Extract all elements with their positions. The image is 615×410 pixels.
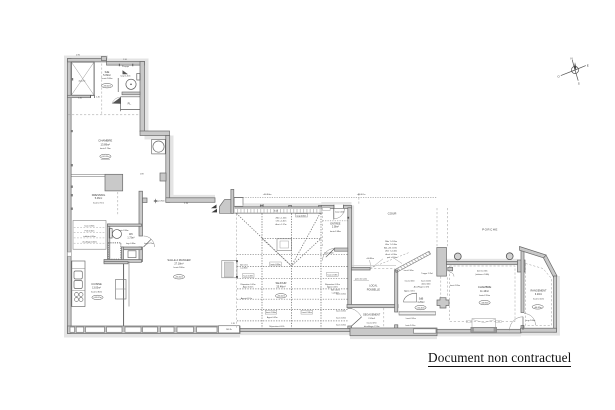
svg-text:haut≈2.08m: haut≈2.08m bbox=[302, 311, 312, 314]
svg-text:haut≈2.05m: haut≈2.05m bbox=[406, 317, 416, 320]
svg-text:douche: douche bbox=[79, 80, 87, 82]
svg-text:Arret +1.37m: Arret +1.37m bbox=[276, 223, 287, 226]
svg-text:L8m +2.40m: L8m +2.40m bbox=[276, 221, 287, 223]
svg-text:L=0.80m: L=0.80m bbox=[240, 268, 248, 270]
svg-text:haut≈2.08m: haut≈2.08m bbox=[330, 230, 341, 233]
svg-text:haut≈2.05m: haut≈2.05m bbox=[336, 316, 346, 319]
svg-text:Am 0.5m: Am 0.5m bbox=[240, 263, 248, 266]
svg-text:SEJOUR: SEJOUR bbox=[276, 281, 287, 285]
svg-text:PORCHE: PORCHE bbox=[482, 227, 498, 231]
svg-text:Réparation≈0.07b: Réparation≈0.07b bbox=[269, 325, 284, 328]
svg-text:haut≈2.80m: haut≈2.80m bbox=[91, 290, 102, 293]
svg-text:+66.02m: +66.02m bbox=[175, 277, 183, 279]
svg-text:13.89m²: 13.89m² bbox=[101, 142, 111, 146]
svg-text:Prof≈0.60m: Prof≈0.60m bbox=[85, 230, 95, 233]
svg-text:1.45: 1.45 bbox=[78, 98, 82, 100]
svg-text:4.25m²: 4.25m² bbox=[417, 301, 424, 304]
svg-text:larg≈1.06m: larg≈1.06m bbox=[324, 251, 334, 254]
svg-text:PL.: PL. bbox=[128, 103, 132, 106]
svg-text:RANGEMENT: RANGEMENT bbox=[531, 289, 547, 292]
svg-text:CHAMBRE: CHAMBRE bbox=[478, 285, 492, 289]
svg-text:265.2b: 265.2b bbox=[226, 329, 232, 331]
svg-text:haut≈2.05m: haut≈2.05m bbox=[405, 279, 415, 282]
svg-text:+66.82m: +66.82m bbox=[534, 307, 542, 309]
svg-text:26bn 7+2.05m: 26bn 7+2.05m bbox=[385, 241, 398, 243]
svg-text:haut≈2.80m: haut≈2.80m bbox=[119, 229, 129, 232]
svg-text:larg≈1.40m: larg≈1.40m bbox=[121, 76, 131, 78]
svg-text:haut≈2.08m: haut≈2.08m bbox=[328, 273, 338, 276]
svg-text:larg≈0.80m: larg≈0.80m bbox=[126, 242, 136, 245]
svg-text:Réparation 0.01m: Réparation 0.01m bbox=[240, 283, 255, 286]
svg-text:L/6m 7+2.40m: L/6m 7+2.40m bbox=[385, 244, 398, 246]
svg-text:S: S bbox=[578, 81, 580, 85]
svg-text:N: N bbox=[571, 56, 573, 60]
svg-text:1.50: 1.50 bbox=[123, 59, 127, 61]
svg-text:AsceFlagen 2.07b: AsceFlagen 2.07b bbox=[414, 286, 429, 289]
svg-text:L/6m 7+2.40m: L/6m 7+2.40m bbox=[385, 251, 398, 253]
svg-text:haut≈2.05m: haut≈2.05m bbox=[404, 269, 414, 272]
svg-text:haut≈2.05m: haut≈2.05m bbox=[405, 324, 415, 327]
svg-text:5.09m²: 5.09m² bbox=[103, 74, 111, 77]
svg-text:LOCAL: LOCAL bbox=[369, 284, 378, 287]
svg-text:larg≈2.08m: larg≈2.08m bbox=[526, 319, 536, 322]
svg-text:6.20m²: 6.20m² bbox=[535, 293, 542, 296]
svg-text:1.35: 1.35 bbox=[231, 323, 235, 325]
svg-text:+66.67m: +66.67m bbox=[357, 194, 366, 196]
svg-text:dalt≈2.40m: dalt≈2.40m bbox=[421, 283, 431, 286]
svg-text:+68.02m: +68.02m bbox=[103, 86, 111, 88]
svg-text:haut≈2.80m: haut≈2.80m bbox=[174, 266, 185, 269]
svg-text:CHAMBRE: CHAMBRE bbox=[98, 138, 112, 142]
svg-text:haut≈2.08m: haut≈2.08m bbox=[243, 275, 253, 278]
svg-text:+66.84m: +66.84m bbox=[263, 194, 272, 196]
svg-text:haut≈2.08m: haut≈2.08m bbox=[102, 77, 113, 80]
svg-text:décaiffrage≈2.54m: décaiffrage≈2.54m bbox=[364, 325, 380, 328]
svg-text:Am 1.42m: Am 1.42m bbox=[331, 289, 340, 292]
svg-text:+66.46m: +66.46m bbox=[416, 308, 424, 310]
svg-text:ENTREE: ENTREE bbox=[330, 222, 340, 225]
svg-text:(intérieur≈2.08h): (intérieur≈2.08h) bbox=[475, 273, 489, 276]
svg-text:haut≈2.05m: haut≈2.05m bbox=[336, 292, 346, 295]
svg-text:tablette≈0.40m: tablette≈0.40m bbox=[83, 235, 96, 238]
svg-text:haut≈2.20m: haut≈2.20m bbox=[533, 298, 544, 301]
svg-text:haut≈0.80m: haut≈0.80m bbox=[85, 224, 95, 227]
svg-text:SdB: SdB bbox=[419, 298, 424, 301]
svg-text:DEGAGEMENT: DEGAGEMENT bbox=[363, 314, 381, 317]
svg-text:5.46m²: 5.46m² bbox=[95, 197, 103, 200]
svg-text:DRESSING: DRESSING bbox=[92, 193, 106, 197]
svg-text:Appui≈0.17m: Appui≈0.17m bbox=[241, 297, 253, 300]
svg-text:+66.02m: +66.02m bbox=[277, 296, 285, 298]
svg-text:haut≈2.47m: haut≈2.47m bbox=[367, 321, 377, 324]
svg-text:13.05m²: 13.05m² bbox=[92, 287, 101, 290]
svg-text:Trappe 2.7bd: Trappe 2.7bd bbox=[421, 272, 432, 275]
svg-text:Appui 0.00m: Appui 0.00m bbox=[327, 286, 338, 289]
svg-text:E: E bbox=[587, 63, 589, 67]
svg-text:haut≈2.05m: haut≈2.05m bbox=[450, 284, 460, 287]
svg-text:2.45m²: 2.45m² bbox=[368, 317, 375, 320]
svg-text:haut≈0.80m: haut≈0.80m bbox=[271, 263, 281, 266]
svg-text:3.08: 3.08 bbox=[260, 205, 264, 207]
svg-text:1.98: 1.98 bbox=[140, 173, 144, 175]
svg-text:haut≈2.08m: haut≈2.08m bbox=[266, 311, 276, 314]
svg-text:haut≈2.71m: haut≈2.71m bbox=[93, 201, 104, 204]
svg-text:26bn +1.40m: 26bn +1.40m bbox=[275, 217, 287, 219]
svg-text:CUISINE: CUISINE bbox=[91, 282, 102, 286]
svg-text:larg≈0.80m: larg≈0.80m bbox=[297, 214, 307, 217]
svg-text:COUR: COUR bbox=[388, 211, 398, 215]
svg-text:SALLE A MANGER: SALLE A MANGER bbox=[167, 258, 190, 262]
svg-text:2.40: 2.40 bbox=[96, 96, 100, 98]
svg-text:dont 12.26m: dont 12.26m bbox=[477, 270, 488, 273]
svg-text:11.16m²: 11.16m² bbox=[480, 290, 489, 293]
svg-text:Appui 2.05m: Appui 2.05m bbox=[404, 289, 415, 292]
svg-text:larg≈0.90m: larg≈0.90m bbox=[155, 200, 165, 203]
svg-text:Appui 0.02m: Appui 0.02m bbox=[267, 316, 278, 319]
svg-text:2.38m²: 2.38m² bbox=[332, 226, 339, 229]
svg-text:+66.02m: +66.02m bbox=[101, 156, 109, 158]
svg-text:larg≈0.73m: larg≈0.73m bbox=[144, 242, 154, 245]
svg-text:larg≈1.40m: larg≈1.40m bbox=[335, 210, 345, 213]
svg-text:27.18m²: 27.18m² bbox=[174, 262, 183, 265]
svg-text:haut≈2.70m: haut≈2.70m bbox=[100, 147, 111, 150]
svg-text:haut≈2.05m: haut≈2.05m bbox=[336, 309, 346, 312]
svg-text:3.08: 3.08 bbox=[274, 211, 278, 213]
svg-text:+66.86m: +66.86m bbox=[366, 258, 374, 260]
svg-text:0.96: 0.96 bbox=[76, 54, 80, 56]
svg-text:prof +0.60m: prof +0.60m bbox=[387, 256, 398, 259]
svg-text:P.trappe: P.trappe bbox=[122, 65, 129, 68]
svg-text:Appui 0.00m: Appui 0.00m bbox=[243, 286, 254, 289]
svg-text:haut≈2.05m: haut≈2.05m bbox=[336, 323, 346, 326]
svg-text:porte de sortie: porte de sortie bbox=[355, 277, 367, 280]
svg-text:haut≈2.40m: haut≈2.40m bbox=[421, 279, 431, 282]
svg-text:Accel +0.96m: Accel +0.96m bbox=[385, 253, 397, 256]
svg-text:2.78: 2.78 bbox=[184, 203, 188, 205]
svg-text:WC: WC bbox=[129, 233, 133, 236]
svg-text:+66.02m: +66.02m bbox=[93, 297, 101, 299]
svg-text:+66.86m: +66.86m bbox=[481, 303, 489, 305]
svg-text:25.46m²: 25.46m² bbox=[276, 285, 285, 288]
svg-text:chauffage≈0.60m: chauffage≈0.60m bbox=[82, 241, 97, 243]
svg-text:POUBELLE: POUBELLE bbox=[367, 288, 381, 291]
svg-text:Réparation 0.01m: Réparation 0.01m bbox=[325, 283, 340, 286]
svg-text:haut≈2.50m: haut≈2.50m bbox=[479, 294, 490, 297]
svg-text:1.73m²: 1.73m² bbox=[127, 237, 134, 240]
svg-text:A6L+2/4 2.18m: A6L+2/4 2.18m bbox=[384, 246, 397, 249]
